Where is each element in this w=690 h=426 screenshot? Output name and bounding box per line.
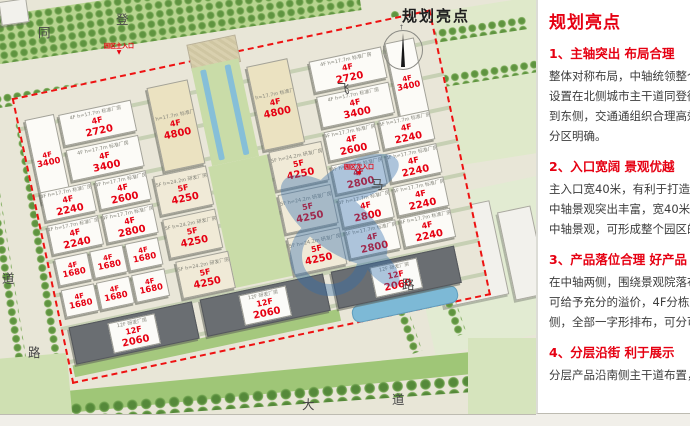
building-label: 5F h=24.2m 研发厂房5F4250 <box>289 232 346 269</box>
building-label: 4F1680 <box>67 290 94 312</box>
building-label: 4F1680 <box>60 258 87 280</box>
green-corner-se <box>468 338 536 415</box>
section-line: 分层产品沿南侧主干道布置， <box>549 365 690 385</box>
road-name-label: 路 <box>402 274 416 293</box>
road-name-label: 飞 <box>337 78 351 97</box>
building-label: 12F 研发厂房12F2060 <box>238 285 292 325</box>
road-name-label: 道 <box>2 268 16 287</box>
building-label: 4F1680 <box>95 251 122 273</box>
road-name-label: 道 <box>392 389 406 408</box>
section-line: 整体对称布局，中轴统领整个 <box>549 66 690 86</box>
section-line: 侧，全部一字形排布，可分可 <box>549 312 690 332</box>
section-4: 4、分层沿街 利于展示 分层产品沿南侧主干道布置， <box>549 342 690 385</box>
map-title: 规划亮点 <box>402 5 470 26</box>
section-heading: 4、分层沿街 利于展示 <box>549 342 690 361</box>
section-line: 中轴景观突出丰富，宽40米长 <box>549 199 690 219</box>
compass-north-icon: † <box>383 30 423 70</box>
section-3: 3、产品落位合理 好产品 在中轴两侧，围绕景观院落布 可给予充分的溢价，4F分栋… <box>549 249 690 332</box>
section-line: 到东侧，交通通组织合理高效 <box>549 106 690 126</box>
panel-title: 规划亮点 <box>549 8 690 33</box>
building-label: 5F h=24.2m 研发厂房5F4250 <box>177 256 234 293</box>
building-label: 5F h=24.2m 研发厂房5F4250 <box>164 215 221 252</box>
road-name-label: 马 <box>371 174 385 193</box>
section-line: 中轴景观，可形成整个园区的 <box>549 219 690 239</box>
section-heading: 2、入口宽阔 景观优越 <box>549 156 690 175</box>
section-2: 2、入口宽阔 景观优越 主入口宽40米，有利于打造园 中轴景观突出丰富，宽40米… <box>549 156 690 239</box>
building-label: 4F h=17.7m 标准厂房4F3400 <box>395 72 422 94</box>
building-label: 4F1680 <box>131 243 158 265</box>
road-name-label: 登 <box>116 9 130 28</box>
building-label: 5F h=24.2m 研发厂房5F4250 <box>280 190 337 227</box>
section-heading: 3、产品落位合理 好产品 <box>549 249 690 268</box>
building-label: 12F 研发厂房12F2060 <box>107 313 161 353</box>
entrance-label: 园区主入口▼ <box>104 41 134 55</box>
section-line: 可给予充分的溢价，4F分栋产 <box>549 292 690 312</box>
section-line: 分区明确。 <box>549 126 690 146</box>
road-name-label: 大 <box>302 394 316 413</box>
section-line: 设置在北侧城市主干道同登街 <box>549 86 690 106</box>
neighbor-building <box>0 0 30 26</box>
highlights-panel: 规划亮点 1、主轴突出 布局合理 整体对称布局，中轴统领整个 设置在北侧城市主干… <box>536 0 690 414</box>
road-name-label: 路 <box>28 342 42 361</box>
section-line: 主入口宽40米，有利于打造园 <box>549 179 690 199</box>
building-label: 4F1680 <box>137 275 164 297</box>
building-label: 5F h=24.2m 研发厂房5F4250 <box>270 147 327 184</box>
entrance-label: 园区次入口▼ <box>344 162 374 176</box>
section-1: 1、主轴突出 布局合理 整体对称布局，中轴统领整个 设置在北侧城市主干道同登街 … <box>549 43 690 146</box>
building-label: 5F h=24.2m 研发厂房5F4250 <box>155 172 212 209</box>
section-heading: 1、主轴突出 布局合理 <box>549 43 690 62</box>
road-name-label: 同 <box>38 22 52 41</box>
building-label: 4F1680 <box>102 282 129 304</box>
section-line: 在中轴两侧，围绕景观院落布 <box>549 272 690 292</box>
building-label: 4F h=17.7m 标准厂房4F3400 <box>35 148 62 170</box>
site-map: 4F h=17.7m 标准厂房4F34004F h=17.7m 标准厂房4F27… <box>0 0 536 415</box>
